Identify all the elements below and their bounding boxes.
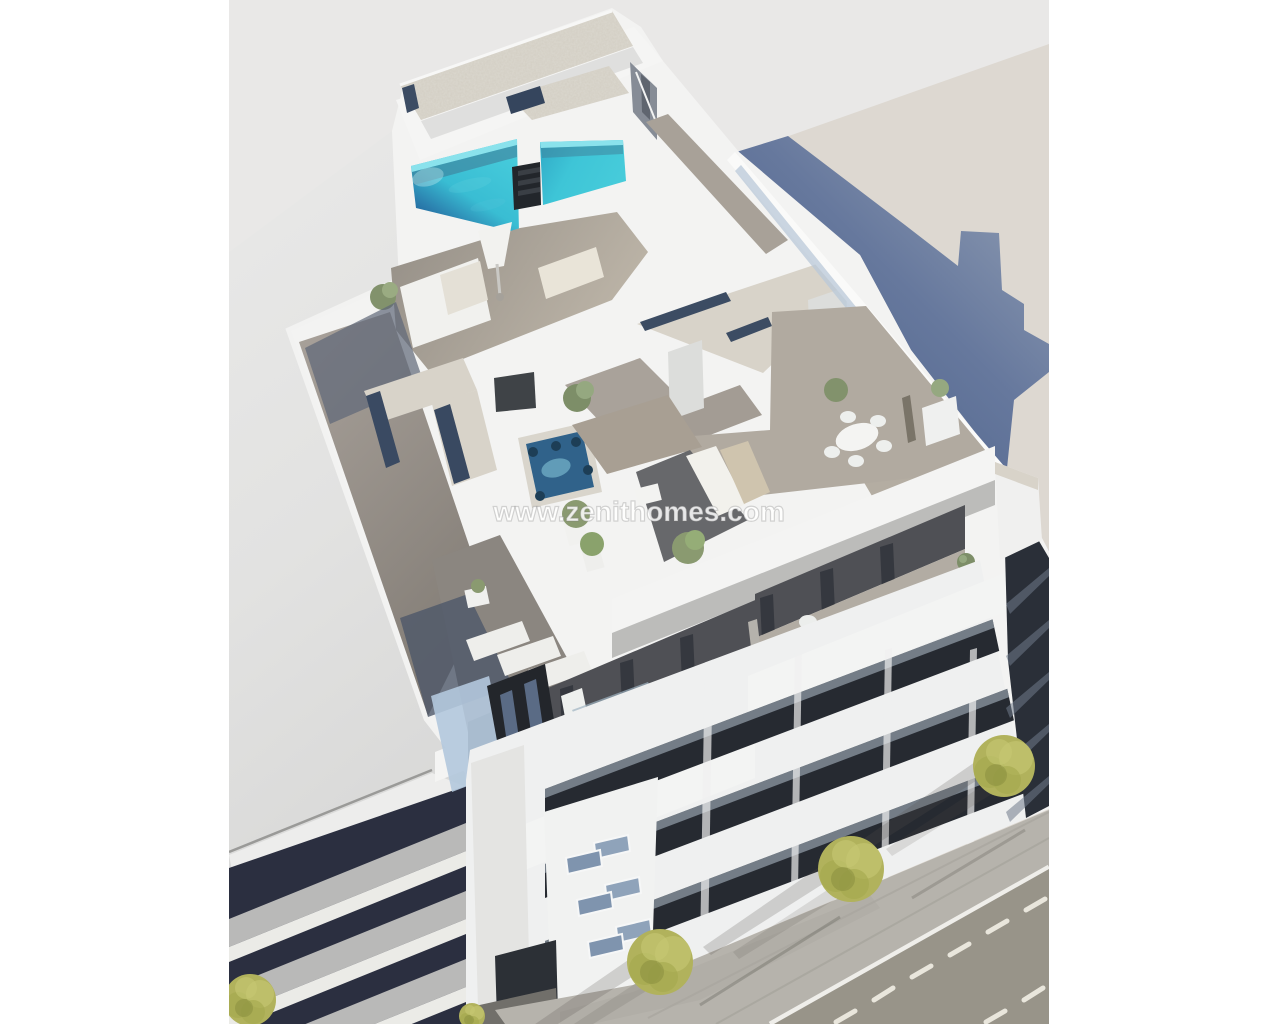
svg-text:www.zenithomes.com: www.zenithomes.com (492, 496, 784, 527)
